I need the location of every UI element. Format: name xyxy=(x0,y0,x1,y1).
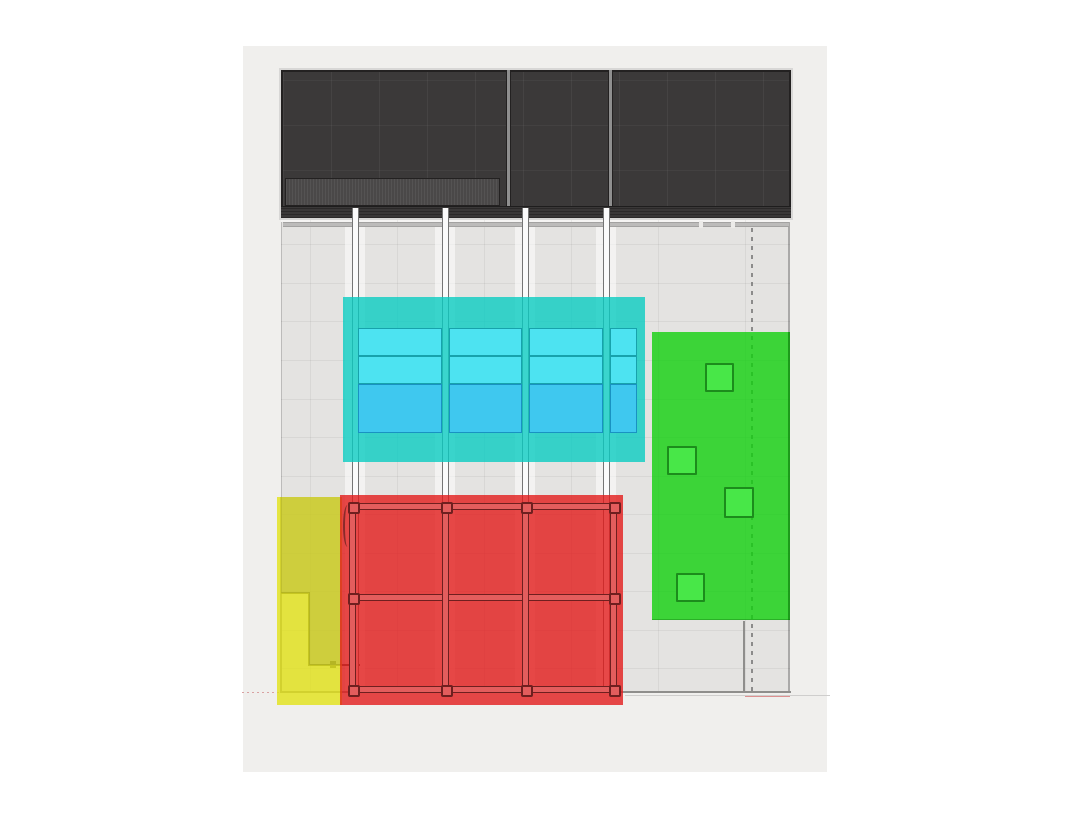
zone-green-edge xyxy=(788,332,790,620)
truss-post[interactable] xyxy=(521,685,533,697)
truss-post[interactable] xyxy=(348,502,360,514)
plan-canvas xyxy=(0,0,1068,822)
seating-row-cell[interactable] xyxy=(610,384,637,433)
truss-post[interactable] xyxy=(348,593,360,605)
track-strip-gap xyxy=(731,221,735,228)
truss-post[interactable] xyxy=(348,685,360,697)
zone-yellow-shade xyxy=(281,497,342,593)
seating-row-cell[interactable] xyxy=(529,328,603,356)
green-marker-square[interactable] xyxy=(705,363,734,392)
seating-row-cell[interactable] xyxy=(529,356,603,384)
zone-yellow-shade xyxy=(309,593,342,665)
seating-row-cell[interactable] xyxy=(449,356,522,384)
seating-row-cell[interactable] xyxy=(358,328,442,356)
truss-post[interactable] xyxy=(609,502,621,514)
seating-row-cell[interactable] xyxy=(449,384,522,433)
truss-post[interactable] xyxy=(441,502,453,514)
annotation-line xyxy=(745,696,790,697)
wall-line-right xyxy=(743,621,745,691)
panel-divider xyxy=(608,70,613,218)
truss-post[interactable] xyxy=(441,685,453,697)
seating-row-cell[interactable] xyxy=(358,356,442,384)
seating-row-cell[interactable] xyxy=(610,328,637,356)
annotation-line xyxy=(625,695,830,696)
green-marker-square[interactable] xyxy=(724,487,754,518)
truss-bar[interactable] xyxy=(522,503,529,693)
annotation-line xyxy=(242,692,281,693)
seating-row-cell[interactable] xyxy=(449,328,522,356)
track-strip-gap xyxy=(699,221,703,228)
truss-bar[interactable] xyxy=(349,594,617,601)
truss-post[interactable] xyxy=(609,685,621,697)
truss-post[interactable] xyxy=(609,593,621,605)
truss-bar[interactable] xyxy=(442,503,449,693)
seating-row-cell[interactable] xyxy=(610,356,637,384)
truss-bar[interactable] xyxy=(349,686,617,693)
seating-row-cell[interactable] xyxy=(358,384,442,433)
panel-divider xyxy=(506,70,511,218)
seating-row-cell[interactable] xyxy=(529,384,603,433)
truss-bar[interactable] xyxy=(349,503,617,510)
truss-post[interactable] xyxy=(521,502,533,514)
green-marker-square[interactable] xyxy=(667,446,697,475)
stage-apron xyxy=(285,178,500,206)
green-marker-square[interactable] xyxy=(676,573,705,602)
zone-green-edge xyxy=(652,619,790,620)
